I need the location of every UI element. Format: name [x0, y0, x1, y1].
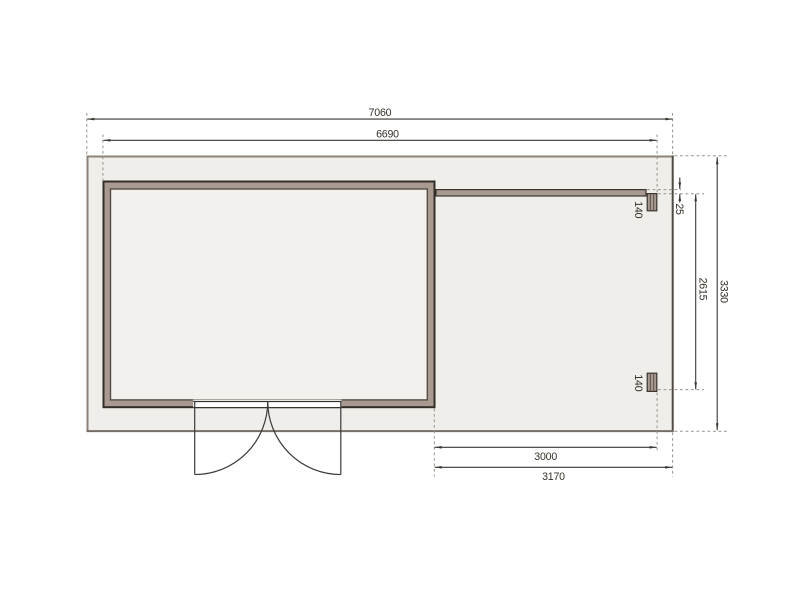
svg-text:7060: 7060 [369, 107, 392, 119]
svg-text:3330: 3330 [718, 280, 730, 303]
svg-text:140: 140 [632, 201, 644, 218]
svg-text:140: 140 [632, 374, 644, 391]
svg-text:3000: 3000 [534, 451, 557, 463]
svg-text:2615: 2615 [697, 278, 709, 301]
svg-text:6690: 6690 [376, 128, 399, 140]
svg-text:25: 25 [673, 203, 685, 215]
svg-text:3170: 3170 [542, 471, 565, 483]
